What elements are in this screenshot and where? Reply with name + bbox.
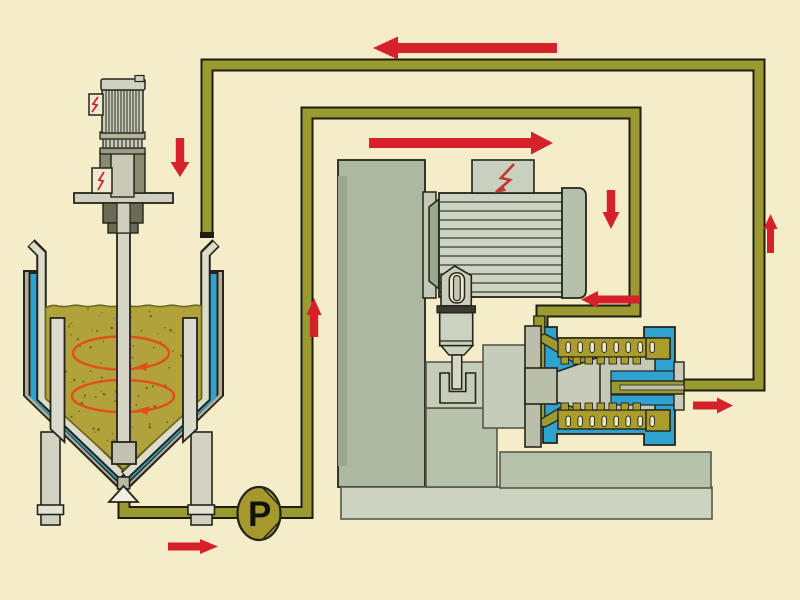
- svg-text:P: P: [248, 495, 271, 534]
